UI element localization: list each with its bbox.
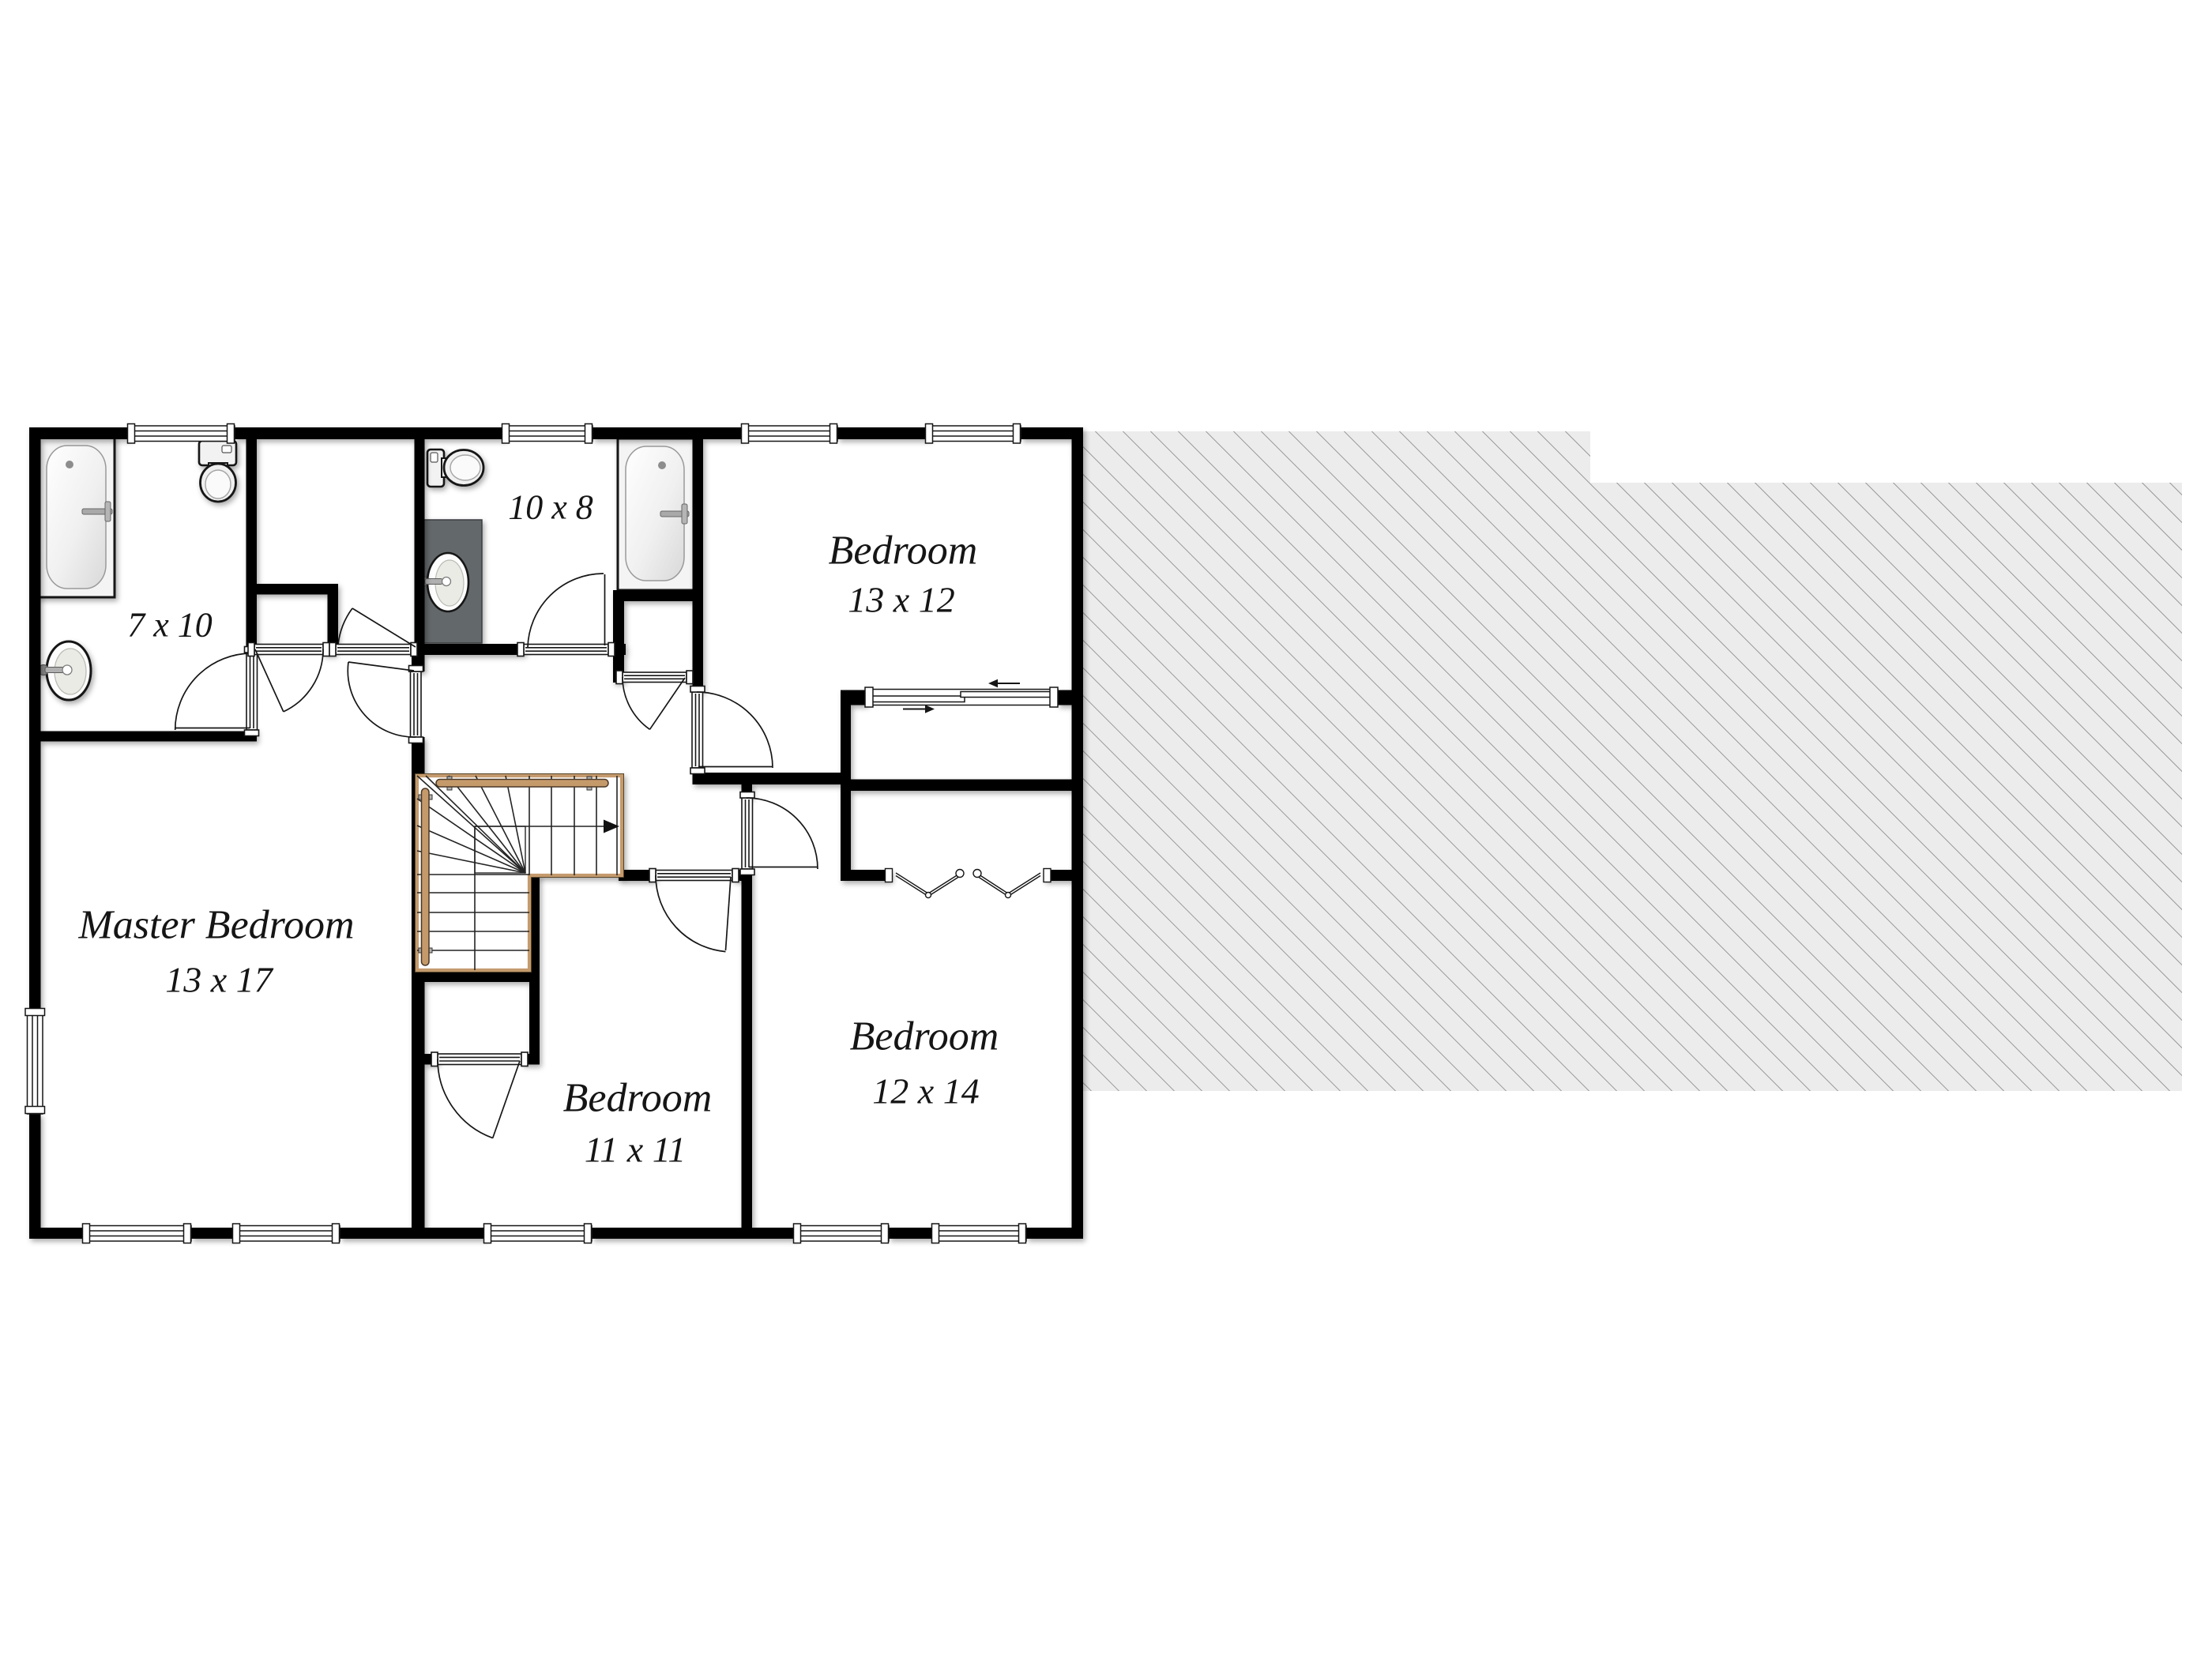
svg-text:Bedroom: Bedroom: [563, 1076, 713, 1121]
svg-text:13 x 12: 13 x 12: [848, 580, 954, 620]
svg-text:7 x 10: 7 x 10: [127, 606, 213, 645]
svg-text:13 x 17: 13 x 17: [165, 960, 273, 1000]
svg-text:Bedroom: Bedroom: [850, 1014, 999, 1059]
svg-text:11 x 11: 11 x 11: [585, 1130, 687, 1170]
svg-text:Bedroom: Bedroom: [829, 529, 978, 574]
svg-text:12 x 14: 12 x 14: [872, 1071, 979, 1112]
svg-text:10 x 8: 10 x 8: [508, 488, 593, 527]
svg-text:Master Bedroom: Master Bedroom: [77, 903, 354, 948]
